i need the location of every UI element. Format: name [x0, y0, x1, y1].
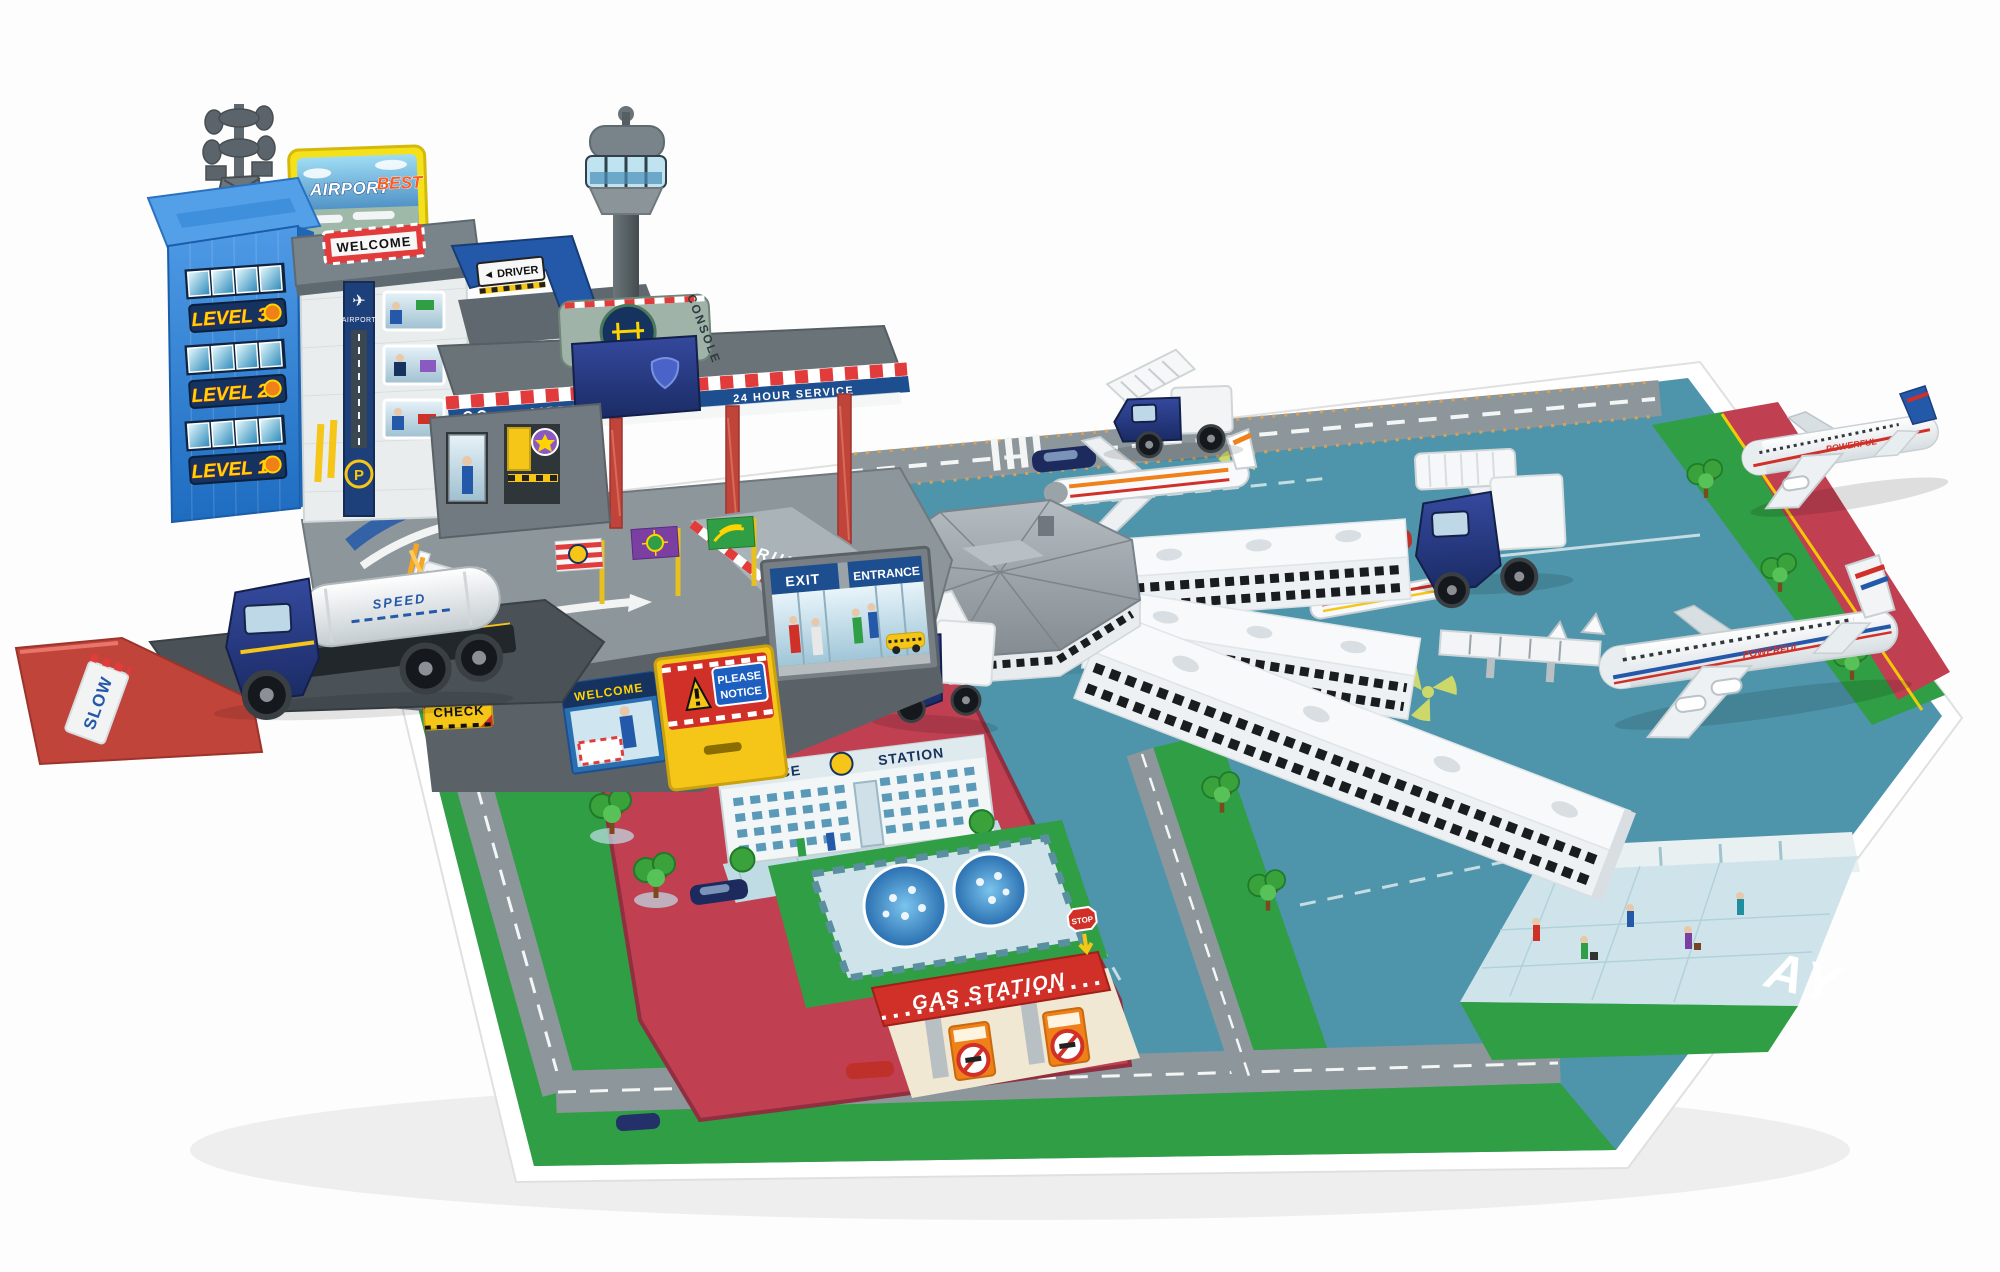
playset-complex: AIRPORT BEST — [16, 104, 952, 792]
flag-purple — [631, 526, 679, 559]
notice-door: PLEASE NOTICE — [654, 645, 787, 790]
flag-striped — [555, 538, 603, 571]
welcome-counter-sticker: WELCOME — [560, 672, 666, 774]
toy-airport-playset-photo: POLICE STATION — [0, 0, 2000, 1272]
exit-label: EXIT — [785, 570, 821, 589]
garage-banner-airport-label: AIRPORT — [342, 317, 377, 324]
tanker-truck: SPEED — [207, 563, 520, 726]
scene-canvas: POLICE STATION — [0, 0, 2000, 1272]
service-bays — [430, 404, 610, 538]
flag-green — [707, 516, 755, 549]
terminal-storefront: EXIT ENTRANCE — [761, 547, 939, 683]
control-tower: CONSOLE — [558, 106, 723, 420]
parking-p-label: P — [354, 467, 364, 484]
garage-window-stickers — [384, 292, 444, 438]
garage-banner: ✈ AIRPORT P — [342, 282, 377, 516]
billboard-best-label: BEST — [377, 173, 425, 194]
plane-icon: ✈ — [352, 293, 365, 310]
driver-sign: ◄ DRIVER — [477, 257, 546, 295]
